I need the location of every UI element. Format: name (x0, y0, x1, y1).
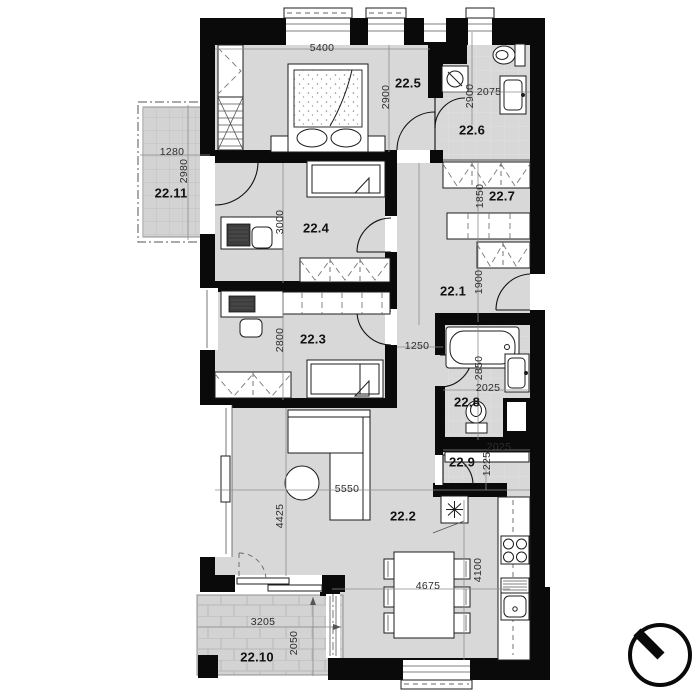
wardrobe-22-1 (477, 242, 530, 268)
dining-chair (453, 587, 470, 607)
toilet-wc (493, 44, 525, 66)
shelves-22-7 (447, 213, 530, 239)
coffee-table (285, 466, 319, 500)
sink-wc (500, 76, 526, 114)
wardrobe-22-4 (300, 258, 390, 282)
single-bed-22-3 (307, 360, 383, 398)
floor-plan-canvas: 22.1 22.2 22.3 22.4 22.5 22.6 22.7 22.8 … (0, 0, 700, 700)
wardrobe-22-3 (215, 372, 291, 398)
desk-22-4 (221, 217, 283, 249)
wardrobe-22-7 (443, 162, 530, 188)
wardrobe-22-5-column (218, 45, 243, 150)
nightstand-left (271, 136, 288, 152)
double-bed (288, 64, 368, 152)
kitchen-sink (501, 578, 529, 620)
balcony (138, 102, 208, 242)
nightstand-right (368, 136, 385, 152)
terrace (197, 595, 343, 678)
desk-chair-22-4 (252, 227, 272, 248)
shelf-strip-22-3 (283, 292, 390, 314)
dining-chair (453, 613, 470, 633)
single-bed-22-4 (307, 161, 385, 197)
dining-set (384, 552, 470, 638)
floor-plan-drawing (0, 0, 700, 700)
duct-shaft (507, 402, 526, 431)
desk-chair-22-3 (240, 319, 262, 337)
dining-chair (453, 559, 470, 579)
shelf-22-9 (445, 452, 529, 462)
bedroom-22-5-furniture (271, 64, 385, 152)
dining-table (394, 552, 454, 638)
stove (501, 536, 529, 564)
sink-bathroom (505, 354, 529, 392)
north-arrow-icon (630, 625, 690, 685)
toilet-bathroom (466, 401, 487, 433)
washing-machine (442, 66, 468, 92)
